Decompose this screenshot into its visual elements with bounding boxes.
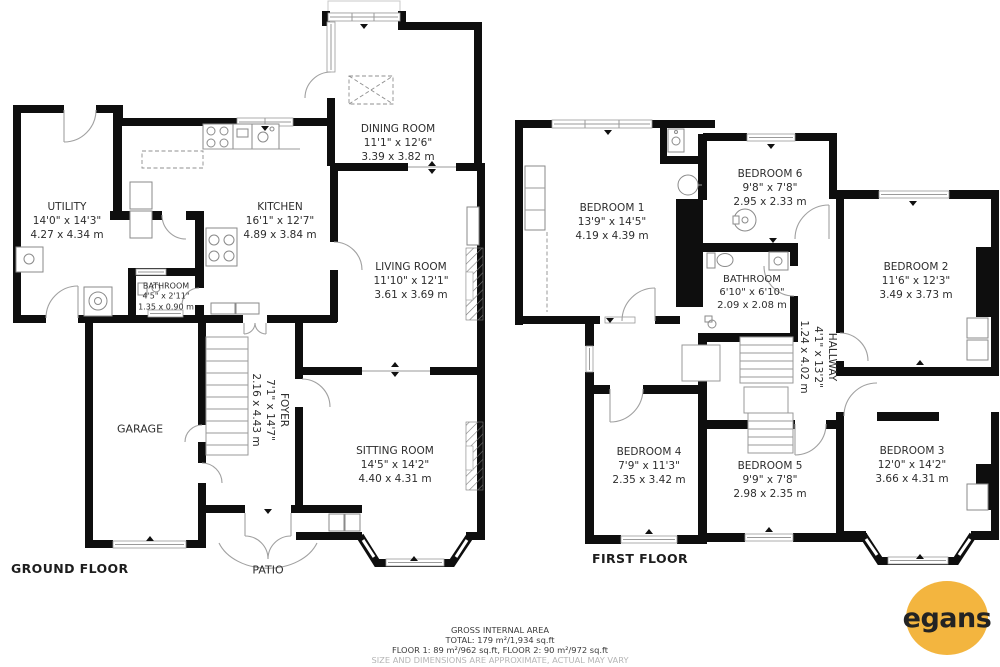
room-name: BEDROOM 6 bbox=[733, 168, 806, 182]
room-label-utility: UTILITY 14'0" x 14'3" 4.27 x 4.34 m bbox=[30, 201, 103, 243]
floorplan-graphics bbox=[0, 0, 1000, 667]
room-dim-imperial: 7'1" x 14'7" bbox=[262, 373, 276, 446]
room-dim-imperial: 13'9" x 14'5" bbox=[575, 216, 648, 230]
room-dim-metric: 4.89 x 3.84 m bbox=[243, 229, 316, 243]
egans-logo: egans bbox=[906, 581, 988, 655]
room-name: BEDROOM 3 bbox=[875, 445, 948, 459]
room-dim-imperial: 11'1" x 12'6" bbox=[361, 137, 435, 151]
area-label-patio: PATIO bbox=[252, 564, 283, 577]
room-name: BEDROOM 5 bbox=[733, 460, 806, 474]
area-label-garage: GARAGE bbox=[117, 423, 163, 436]
first-floor-title: FIRST FLOOR bbox=[592, 551, 688, 566]
room-dim-imperial: 11'6" x 12'3" bbox=[879, 275, 952, 289]
room-dim-metric: 4.40 x 4.31 m bbox=[356, 473, 434, 487]
egans-logo-text: egans bbox=[903, 603, 992, 634]
dining-room-feature bbox=[349, 76, 393, 104]
room-dim-metric: 4.27 x 4.34 m bbox=[30, 229, 103, 243]
room-label-bedroom-3: BEDROOM 3 12'0" x 14'2" 3.66 x 4.31 m bbox=[875, 445, 948, 487]
room-dim-metric: 1.35 x 0.90 m bbox=[138, 302, 194, 312]
floorplan-canvas: UTILITY 14'0" x 14'3" 4.27 x 4.34 m KITC… bbox=[0, 0, 1000, 667]
room-name: UTILITY bbox=[30, 201, 103, 215]
room-label-kitchen: KITCHEN 16'1" x 12'7" 4.89 x 3.84 m bbox=[243, 201, 316, 243]
footer-disclaimer: SIZE AND DIMENSIONS ARE APPROXIMATE, ACT… bbox=[0, 655, 1000, 665]
room-label-sitting-room: SITTING ROOM 14'5" x 14'2" 4.40 x 4.31 m bbox=[356, 445, 434, 487]
room-dim-imperial: 12'0" x 14'2" bbox=[875, 459, 948, 473]
room-dim-imperial: 11'10" x 12'1" bbox=[373, 275, 448, 289]
footer-area-summary: GROSS INTERNAL AREA TOTAL: 179 m²/1,934 … bbox=[0, 625, 1000, 665]
room-name: BATHROOM bbox=[717, 273, 787, 286]
room-dim-imperial: 7'9" x 11'3" bbox=[612, 460, 685, 474]
footer-gross-internal-area: GROSS INTERNAL AREA bbox=[0, 625, 1000, 635]
room-dim-metric: 2.95 x 2.33 m bbox=[733, 196, 806, 210]
room-dim-imperial: 14'0" x 14'3" bbox=[30, 215, 103, 229]
sitting-room-bay-window bbox=[360, 536, 470, 566]
room-dim-metric: 3.61 x 3.69 m bbox=[373, 289, 448, 303]
room-dim-metric: 3.39 x 3.82 m bbox=[361, 151, 435, 165]
room-dim-imperial: 6'10" x 6'10" bbox=[717, 286, 787, 299]
room-dim-metric: 2.16 x 4.43 m bbox=[248, 373, 262, 446]
room-name: BEDROOM 2 bbox=[879, 261, 952, 275]
room-name: BEDROOM 1 bbox=[575, 202, 648, 216]
room-dim-metric: 1.24 x 4.02 m bbox=[796, 320, 810, 393]
room-name: BEDROOM 4 bbox=[612, 446, 685, 460]
room-name: LIVING ROOM bbox=[373, 261, 448, 275]
room-name: DINING ROOM bbox=[361, 123, 435, 137]
room-label-bedroom-4: BEDROOM 4 7'9" x 11'3" 2.35 x 3.42 m bbox=[612, 446, 685, 488]
room-label-bedroom-2: BEDROOM 2 11'6" x 12'3" 3.49 x 3.73 m bbox=[879, 261, 952, 303]
room-dim-metric: 3.66 x 4.31 m bbox=[875, 473, 948, 487]
room-dim-imperial: 9'8" x 7'8" bbox=[733, 182, 806, 196]
room-name: SITTING ROOM bbox=[356, 445, 434, 459]
room-dim-imperial: 16'1" x 12'7" bbox=[243, 215, 316, 229]
room-label-bedroom-6: BEDROOM 6 9'8" x 7'8" 2.95 x 2.33 m bbox=[733, 168, 806, 210]
ground-stairs bbox=[206, 337, 248, 455]
room-dim-imperial: 9'9" x 7'8" bbox=[733, 474, 806, 488]
room-dim-imperial: 14'5" x 14'2" bbox=[356, 459, 434, 473]
footer-floor-areas: FLOOR 1: 89 m²/962 sq.ft, FLOOR 2: 90 m²… bbox=[0, 645, 1000, 655]
room-name: FOYER bbox=[276, 373, 290, 446]
room-dim-imperial: 4'5" x 2'11" bbox=[138, 292, 194, 302]
footer-total-area: TOTAL: 179 m²/1,934 sq.ft bbox=[0, 635, 1000, 645]
room-dim-metric: 2.35 x 3.42 m bbox=[612, 474, 685, 488]
room-label-hallway: HALLWAY 4'1" x 13'2" 1.24 x 4.02 m bbox=[796, 320, 838, 393]
room-dim-metric: 3.49 x 3.73 m bbox=[879, 289, 952, 303]
room-name: BATHROOM bbox=[138, 281, 194, 291]
room-dim-metric: 4.19 x 4.39 m bbox=[575, 230, 648, 244]
bedroom3-bay-window bbox=[863, 535, 973, 564]
room-name: HALLWAY bbox=[824, 320, 838, 393]
ground-floor-title: GROUND FLOOR bbox=[11, 561, 129, 576]
room-dim-imperial: 4'1" x 13'2" bbox=[810, 320, 824, 393]
room-label-dining-room: DINING ROOM 11'1" x 12'6" 3.39 x 3.82 m bbox=[361, 123, 435, 165]
room-label-bedroom-5: BEDROOM 5 9'9" x 7'8" 2.98 x 2.35 m bbox=[733, 460, 806, 502]
room-label-bathroom-ground: BATHROOM 4'5" x 2'11" 1.35 x 0.90 m bbox=[138, 281, 194, 312]
room-dim-metric: 2.09 x 2.08 m bbox=[717, 300, 787, 313]
room-label-foyer: FOYER 7'1" x 14'7" 2.16 x 4.43 m bbox=[248, 373, 290, 446]
room-name: KITCHEN bbox=[243, 201, 316, 215]
room-dim-metric: 2.98 x 2.35 m bbox=[733, 488, 806, 502]
room-label-living-room: LIVING ROOM 11'10" x 12'1" 3.61 x 3.69 m bbox=[373, 261, 448, 303]
patio-doors bbox=[219, 513, 317, 568]
room-label-bedroom-1: BEDROOM 1 13'9" x 14'5" 4.19 x 4.39 m bbox=[575, 202, 648, 244]
room-label-bathroom-first: BATHROOM 6'10" x 6'10" 2.09 x 2.08 m bbox=[717, 273, 787, 313]
